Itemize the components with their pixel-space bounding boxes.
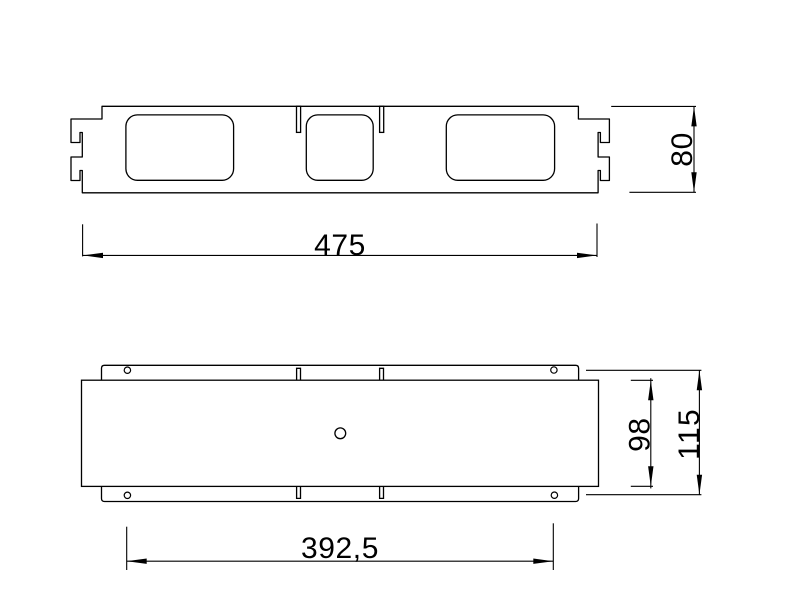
svg-text:475: 475 <box>314 229 366 262</box>
svg-text:80: 80 <box>666 132 699 167</box>
svg-text:98: 98 <box>624 417 657 452</box>
svg-text:392,5: 392,5 <box>301 532 379 565</box>
svg-text:115: 115 <box>673 408 706 460</box>
